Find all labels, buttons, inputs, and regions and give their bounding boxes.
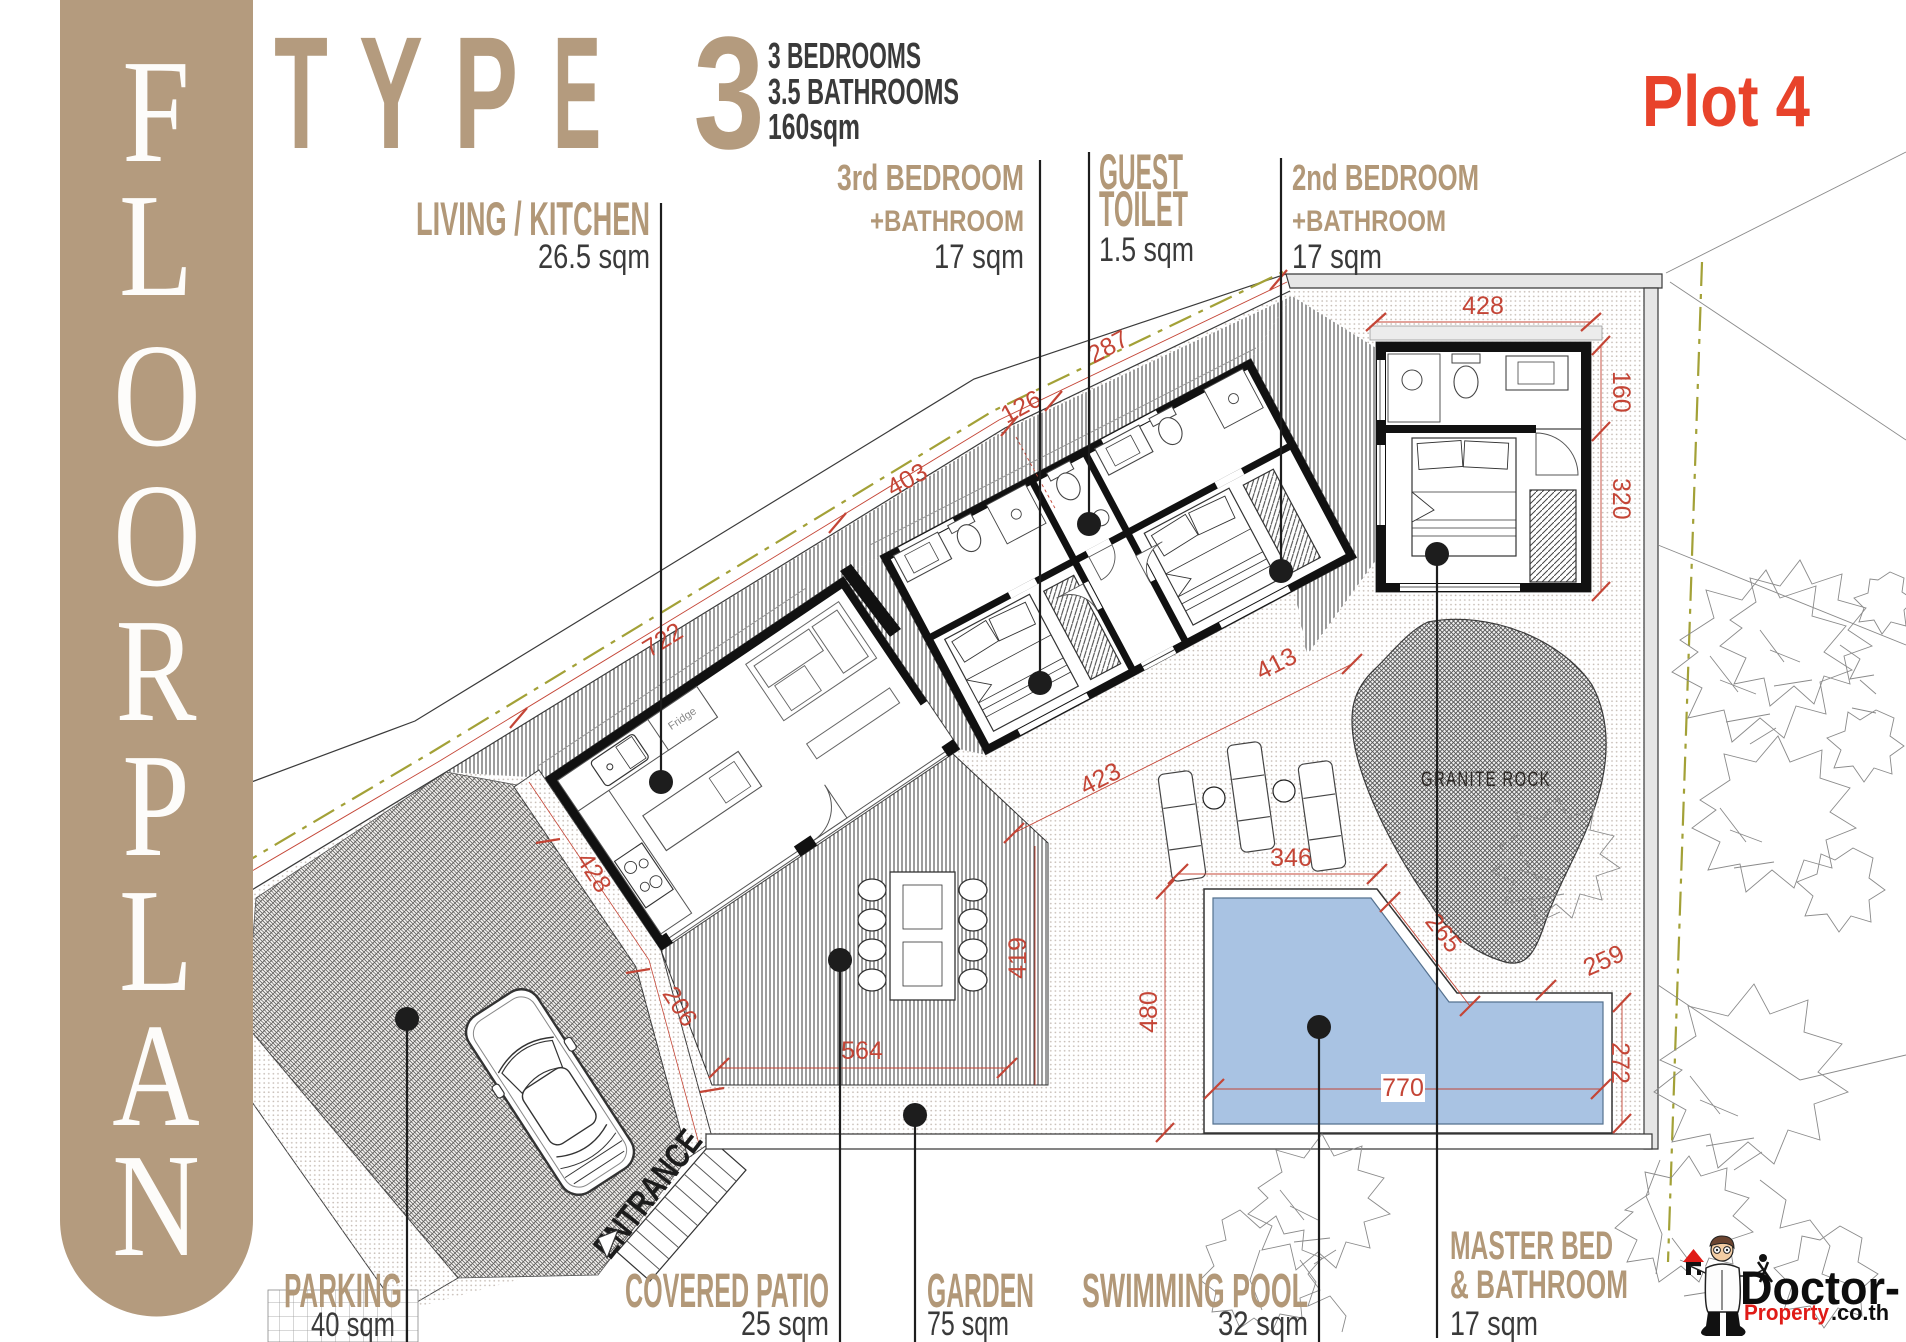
svg-text:26.5 sqm: 26.5 sqm	[538, 238, 650, 276]
svg-text:1.5 sqm: 1.5 sqm	[1099, 231, 1194, 269]
svg-text:346: 346	[1270, 844, 1312, 872]
svg-text:320: 320	[1607, 478, 1635, 520]
svg-text:428: 428	[1462, 292, 1504, 320]
svg-text:564: 564	[841, 1037, 883, 1065]
svg-text:17 sqm: 17 sqm	[1450, 1305, 1538, 1342]
svg-text:.co.th: .co.th	[1831, 1300, 1889, 1325]
svg-text:32 sqm: 32 sqm	[1218, 1305, 1308, 1342]
svg-text:E: E	[553, 5, 601, 183]
svg-text:MASTER BED: MASTER BED	[1450, 1224, 1613, 1268]
svg-text:TOILET: TOILET	[1099, 181, 1188, 237]
svg-text:Property: Property	[1744, 1300, 1830, 1325]
svg-text:770: 770	[1382, 1074, 1424, 1102]
svg-text:17 sqm: 17 sqm	[934, 238, 1024, 276]
svg-text:3: 3	[693, 3, 764, 182]
svg-text:3 BEDROOMS: 3 BEDROOMS	[768, 35, 921, 76]
svg-text:3rd BEDROOM: 3rd BEDROOM	[837, 157, 1024, 198]
svg-text:272: 272	[1606, 1042, 1634, 1084]
svg-text:L: L	[119, 164, 193, 328]
svg-text:T: T	[274, 4, 328, 182]
svg-text:419: 419	[1004, 937, 1032, 979]
svg-text:160: 160	[1607, 371, 1635, 413]
svg-text:+BATHROOM: +BATHROOM	[870, 205, 1024, 238]
svg-text:40 sqm: 40 sqm	[311, 1306, 395, 1342]
svg-text:2nd BEDROOM: 2nd BEDROOM	[1292, 157, 1479, 198]
svg-text:Y: Y	[359, 4, 423, 182]
svg-text:17 sqm: 17 sqm	[1292, 238, 1382, 276]
svg-text:P: P	[454, 4, 518, 182]
svg-text:N: N	[112, 1124, 200, 1288]
svg-text:480: 480	[1135, 991, 1163, 1033]
svg-text:75 sqm: 75 sqm	[927, 1305, 1009, 1342]
svg-text:& BATHROOM: & BATHROOM	[1450, 1263, 1628, 1307]
svg-text:+BATHROOM: +BATHROOM	[1292, 205, 1446, 238]
svg-text:160sqm: 160sqm	[768, 106, 860, 147]
svg-text:Plot 4: Plot 4	[1642, 62, 1810, 142]
svg-text:GRANITE ROCK: GRANITE ROCK	[1421, 768, 1551, 791]
svg-text:25 sqm: 25 sqm	[741, 1305, 829, 1342]
